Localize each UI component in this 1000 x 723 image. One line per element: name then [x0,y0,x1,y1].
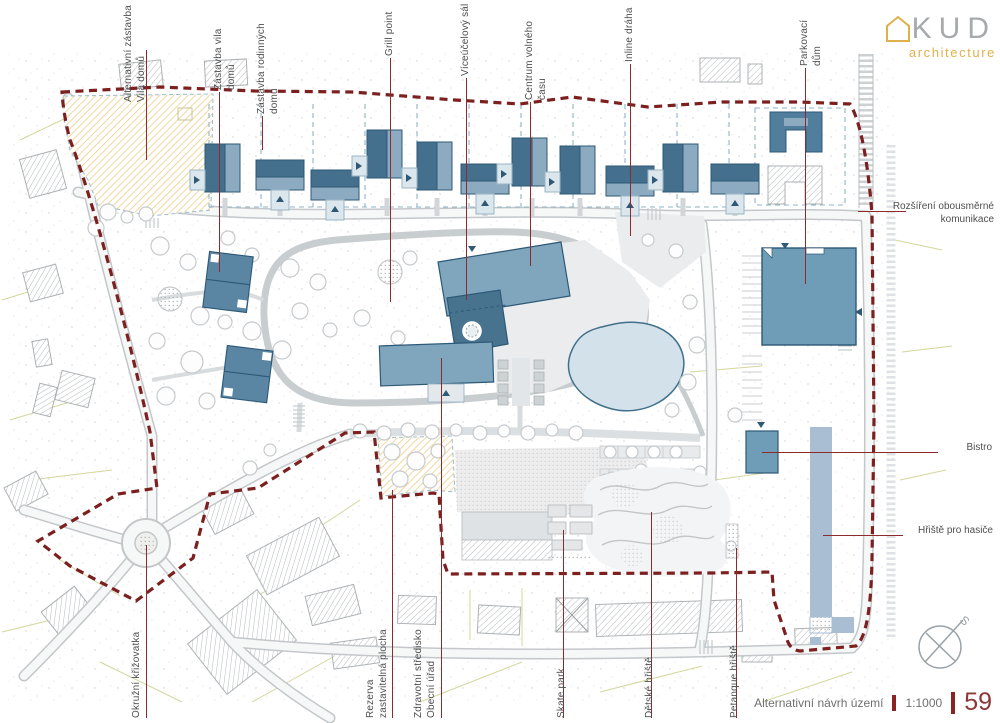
leader-line [219,92,220,272]
leader-line [146,545,147,718]
label-hriste-pro-hasice: Hřiště pro hasiče [905,524,993,537]
leader-line [441,358,442,718]
label-petanque-hriste: Petanque hřiště [728,640,741,718]
label-rezerva: Rezerva zastavitelná plocha [364,624,390,718]
compass-letter: S [957,613,972,629]
label-detske-hriste: Dětské hřiště [643,652,656,718]
logo-subtitle: architecture [909,45,996,60]
label-inline-draha: Inline dráha [623,4,636,62]
label-grill-point: Grill point [383,4,396,56]
label-zastavba-rodinnych-domu: Zástavba rodinných domů [255,2,281,114]
logo-text: KUD [912,14,996,44]
divider-bar [951,692,955,714]
label-alternativni-zastavba: Alternativní zástavba Vila domů [122,2,148,102]
divider-bar [892,695,896,711]
page-number: 59 [964,688,992,717]
playground [584,467,731,577]
leader-line [530,102,531,266]
label-centrum-volneho-casu: Centrum volného času [523,3,549,100]
site-plan-page: S Alternativní zástavba Vila domů Zástav… [0,0,1000,723]
leader-line [262,116,263,150]
logo-house-icon [884,14,912,44]
label-parkovaci-dum: Parkovací dům [798,4,824,66]
label-bistro: Bistro [940,441,992,454]
leader-line [823,535,903,536]
parking-house [762,243,862,345]
label-zastavba-vila-domu: Zástavba vila domů [212,2,238,90]
leader-line [630,64,631,236]
drawing-title: Alternativní návrh území [754,696,883,710]
logo: KUD architecture [884,14,996,60]
leader-line [392,490,393,718]
compass: S [919,613,972,668]
title-block: Alternativní návrh území 1:1000 59 [754,688,992,717]
leader-line [466,78,467,300]
label-viceucelovy-sal: Víceúčelový sál [459,3,472,76]
leader-line [805,68,806,284]
label-zdravotni-stredisko: Zdravotní středisko Obecní úřad [412,626,438,718]
label-okruzni-krizovatka: Okružní křižovatka [130,622,143,718]
drawing-scale: 1:1000 [905,696,942,710]
leader-line [390,58,391,302]
leader-line [762,452,938,453]
label-rozsireni-komunikace: Rozšíření obousměrné komunikace [870,200,994,226]
label-skate-park: Skate park [555,666,568,718]
pond [568,322,683,410]
site-plan-drawing: S [0,0,1000,723]
